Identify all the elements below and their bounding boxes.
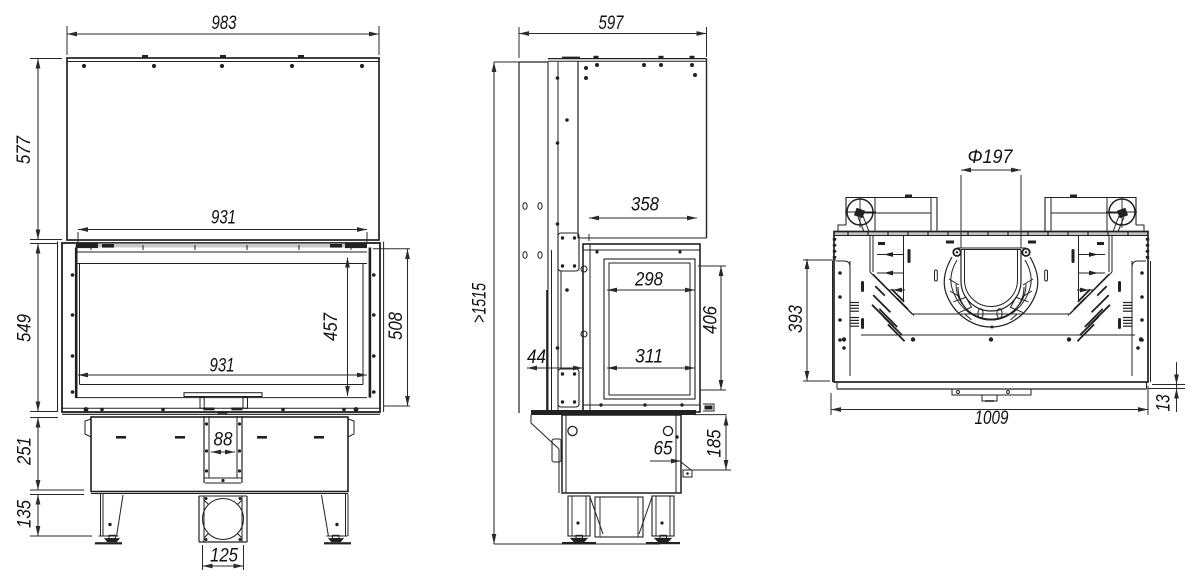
svg-text:125: 125 <box>210 546 238 567</box>
svg-text:311: 311 <box>635 347 663 368</box>
svg-text:65: 65 <box>654 439 673 460</box>
svg-text:135: 135 <box>15 500 36 528</box>
svg-text:597: 597 <box>599 13 625 34</box>
svg-text:88: 88 <box>214 430 233 451</box>
svg-text:298: 298 <box>634 270 663 291</box>
svg-text:1009: 1009 <box>975 408 1009 429</box>
svg-text:549: 549 <box>15 314 36 342</box>
svg-text:457: 457 <box>321 312 342 341</box>
svg-text:251: 251 <box>15 437 36 466</box>
svg-text:185: 185 <box>705 429 726 457</box>
svg-text:931: 931 <box>210 356 235 377</box>
svg-text:508: 508 <box>386 312 407 340</box>
svg-text:Φ197: Φ197 <box>968 147 1014 168</box>
svg-text:>1515: >1515 <box>470 283 491 323</box>
svg-text:393: 393 <box>786 305 807 333</box>
svg-text:931: 931 <box>211 208 236 229</box>
svg-text:13: 13 <box>1154 394 1175 411</box>
svg-text:577: 577 <box>14 135 35 164</box>
svg-text:358: 358 <box>631 195 659 216</box>
svg-text:406: 406 <box>701 306 722 334</box>
svg-text:983: 983 <box>212 13 237 34</box>
svg-text:44: 44 <box>527 347 546 368</box>
